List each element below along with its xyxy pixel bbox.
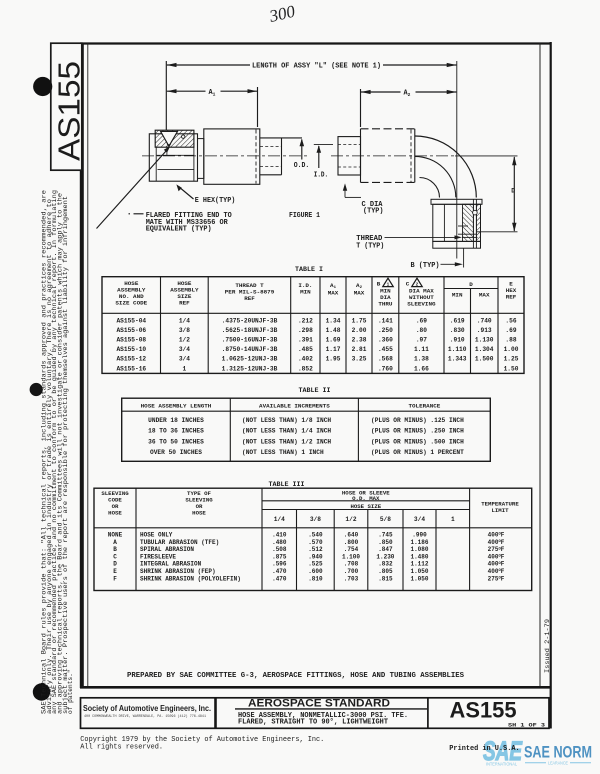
svg-text:.815: .815 — [378, 575, 393, 582]
svg-text:.800: .800 — [344, 539, 359, 546]
svg-text:.805: .805 — [378, 568, 393, 575]
svg-text:(PLUS OR MINUS) 1 PERCENT: (PLUS OR MINUS) 1 PERCENT — [371, 449, 464, 456]
svg-text:400OF: 400OF — [488, 539, 505, 546]
svg-text:A1: A1 — [209, 89, 216, 97]
svg-text:MAX: MAX — [479, 292, 490, 299]
svg-text:1.0625-12UNJ-3B: 1.0625-12UNJ-3B — [222, 356, 278, 363]
svg-text:400OF: 400OF — [488, 553, 505, 560]
svg-text:1.69: 1.69 — [326, 337, 341, 344]
svg-text:AS155: AS155 — [52, 61, 87, 161]
svg-text:2.38: 2.38 — [352, 337, 367, 344]
svg-text:1.130: 1.130 — [475, 337, 494, 344]
svg-text:D: D — [113, 561, 117, 568]
svg-text:of patents.": of patents." — [67, 669, 74, 714]
svg-text:TABLE I: TABLE I — [295, 266, 323, 273]
svg-text:.708: .708 — [344, 561, 359, 568]
svg-text:.7500-16UNJF-3B: .7500-16UNJF-3B — [222, 337, 278, 344]
svg-text:.600: .600 — [308, 568, 323, 575]
svg-text:1.48: 1.48 — [326, 327, 341, 334]
svg-text:THRU: THRU — [378, 301, 393, 308]
svg-text:2.00: 2.00 — [352, 327, 367, 334]
svg-text:(NOT LESS THAN) 1/8 INCH: (NOT LESS THAN) 1/8 INCH — [242, 417, 331, 424]
svg-text:.940: .940 — [308, 553, 323, 560]
svg-text:1.186: 1.186 — [410, 539, 428, 546]
svg-text:.80: .80 — [416, 327, 427, 334]
svg-text:.913: .913 — [477, 327, 492, 334]
svg-text:.212: .212 — [298, 317, 313, 324]
svg-text:.8750-14UNJF-3B: .8750-14UNJF-3B — [222, 346, 278, 353]
svg-text:1.480: 1.480 — [410, 553, 428, 560]
svg-text:1.100: 1.100 — [342, 553, 360, 560]
svg-text:.810: .810 — [308, 575, 323, 582]
svg-text:SH 1 OF 3: SH 1 OF 3 — [508, 722, 546, 729]
svg-text:400OF: 400OF — [488, 561, 505, 568]
svg-text:HOSE ASSEMBLY LENGTH: HOSE ASSEMBLY LENGTH — [141, 403, 212, 410]
svg-text:400OF: 400OF — [488, 532, 505, 539]
svg-text:3/8: 3/8 — [310, 516, 321, 523]
svg-text:.830: .830 — [450, 327, 465, 334]
svg-text:MIN: MIN — [452, 292, 463, 299]
svg-text:400OF: 400OF — [488, 568, 505, 575]
svg-text:LENGTH OF ASSY "L" (SEE NOTE 1: LENGTH OF ASSY "L" (SEE NOTE 1) — [252, 62, 381, 70]
svg-text:3/8: 3/8 — [179, 327, 190, 334]
svg-text:EQUIVALENT (TYP): EQUIVALENT (TYP) — [146, 226, 212, 234]
svg-text:.700: .700 — [344, 568, 359, 575]
svg-text:SLEEVING: SLEEVING — [407, 301, 436, 308]
svg-text:.141: .141 — [378, 317, 393, 324]
svg-text:.508: .508 — [272, 546, 287, 553]
svg-text:REF: REF — [179, 300, 190, 307]
svg-text:1/4: 1/4 — [179, 317, 190, 324]
svg-text:C: C — [113, 553, 117, 560]
svg-text:275OF: 275OF — [488, 575, 505, 582]
svg-text:1.66: 1.66 — [414, 365, 429, 372]
svg-text:AS155-10: AS155-10 — [116, 346, 146, 353]
svg-text:T (TYP): T (TYP) — [356, 242, 384, 250]
svg-text:All rights reserved.: All rights reserved. — [80, 743, 163, 751]
svg-text:FIGURE 1: FIGURE 1 — [289, 212, 320, 220]
svg-text:SHRINK ABRASION (POLYOLEFIN): SHRINK ABRASION (POLYOLEFIN) — [140, 575, 241, 582]
svg-text:.640: .640 — [344, 532, 359, 539]
svg-text:1.17: 1.17 — [326, 346, 341, 353]
svg-text:1.050: 1.050 — [410, 575, 428, 582]
svg-text:2.81: 2.81 — [352, 346, 367, 353]
svg-text:UNDER 18 INCHES: UNDER 18 INCHES — [148, 417, 204, 424]
svg-text:1.110: 1.110 — [448, 346, 467, 353]
svg-text:1.500: 1.500 — [475, 356, 494, 363]
svg-text:B (TYP): B (TYP) — [411, 262, 440, 270]
svg-text:.754: .754 — [344, 546, 359, 553]
svg-text:1.230: 1.230 — [376, 553, 394, 560]
svg-text:1.050: 1.050 — [410, 568, 428, 575]
svg-text:.4375-20UNJF-3B: .4375-20UNJF-3B — [222, 317, 278, 324]
svg-text:300: 300 — [267, 2, 298, 27]
svg-text:MAX: MAX — [354, 290, 365, 297]
svg-text:.410: .410 — [272, 532, 287, 539]
svg-text:AS155-04: AS155-04 — [116, 317, 146, 324]
svg-text:AS155: AS155 — [450, 697, 517, 722]
svg-text:AVAILABLE INCREMENTS: AVAILABLE INCREMENTS — [259, 403, 330, 410]
svg-text:REF: REF — [506, 294, 517, 301]
svg-text:1.11: 1.11 — [414, 346, 429, 353]
svg-text:LEARANCE: LEARANCE — [548, 761, 568, 766]
svg-text:1.304: 1.304 — [475, 346, 494, 353]
svg-text:INTERNATIONAL: INTERNATIONAL — [486, 762, 518, 767]
svg-text:SAE NORM: SAE NORM — [524, 743, 592, 762]
svg-text:TABLE III: TABLE III — [269, 481, 305, 488]
svg-text:1.112: 1.112 — [410, 561, 428, 568]
svg-text:O.D. MAX: O.D. MAX — [352, 495, 380, 502]
svg-text:.990: .990 — [412, 532, 427, 539]
svg-text:(NOT LESS THAN) 1/4 INCH: (NOT LESS THAN) 1/4 INCH — [242, 428, 331, 435]
svg-text:.910: .910 — [450, 337, 465, 344]
svg-text:HOSE: HOSE — [108, 510, 122, 517]
svg-text:.470: .470 — [272, 568, 287, 575]
svg-text:3.25: 3.25 — [352, 356, 367, 363]
svg-text:.850: .850 — [378, 539, 393, 546]
svg-text:C: C — [406, 281, 410, 288]
svg-text:.596: .596 — [272, 561, 287, 568]
svg-text:SHRINK ABRASION (FEP): SHRINK ABRASION (FEP) — [140, 568, 216, 575]
svg-text:.852: .852 — [298, 365, 313, 372]
svg-text:1.95: 1.95 — [326, 356, 341, 363]
svg-text:.703: .703 — [344, 575, 359, 582]
svg-text:.5625-18UNJF-3B: .5625-18UNJF-3B — [222, 327, 278, 334]
svg-text:OVER 50 INCHES: OVER 50 INCHES — [150, 449, 202, 456]
svg-text:TABLE II: TABLE II — [299, 387, 331, 394]
svg-text:1/2: 1/2 — [345, 516, 356, 523]
svg-text:.540: .540 — [308, 532, 323, 539]
svg-text:.570: .570 — [308, 539, 323, 546]
svg-text:HOSE: HOSE — [192, 510, 206, 517]
svg-text:.760: .760 — [378, 365, 393, 372]
svg-text:Printed in U.S.A.: Printed in U.S.A. — [449, 745, 519, 753]
svg-text:.745: .745 — [378, 532, 393, 539]
svg-text:F: F — [113, 575, 117, 582]
svg-text:SIZE CODE: SIZE CODE — [115, 300, 147, 307]
svg-text:B: B — [113, 546, 117, 553]
svg-text:.402: .402 — [298, 356, 313, 363]
svg-text:INTEGRAL ABRASION: INTEGRAL ABRASION — [140, 561, 202, 568]
svg-text:1.343: 1.343 — [448, 356, 467, 363]
svg-text:.568: .568 — [378, 356, 393, 363]
svg-text:1: 1 — [183, 365, 187, 372]
svg-text:MAX: MAX — [328, 290, 339, 297]
svg-text:(NOT LESS THAN) 1 INCH: (NOT LESS THAN) 1 INCH — [242, 449, 324, 456]
svg-text:(PLUS OR MINUS) .125 INCH: (PLUS OR MINUS) .125 INCH — [371, 417, 464, 424]
svg-text:.847: .847 — [378, 546, 393, 553]
svg-text:3/4: 3/4 — [179, 346, 190, 353]
svg-text:.455: .455 — [378, 346, 393, 353]
svg-text:LIMIT: LIMIT — [491, 507, 509, 514]
svg-text:A: A — [113, 539, 117, 546]
svg-text:.740: .740 — [477, 317, 492, 324]
svg-text:.480: .480 — [272, 539, 287, 546]
svg-text:1.38: 1.38 — [414, 356, 429, 363]
svg-text:1.34: 1.34 — [326, 317, 341, 324]
svg-text:AS155-16: AS155-16 — [116, 365, 146, 372]
svg-text:1.00: 1.00 — [504, 346, 519, 353]
svg-text:.525: .525 — [308, 561, 323, 568]
svg-text:3/4: 3/4 — [414, 516, 425, 523]
svg-text:MIN: MIN — [300, 289, 311, 296]
svg-text:1.50: 1.50 — [504, 365, 519, 372]
svg-text:D: D — [469, 281, 473, 288]
svg-text:E HEX(TYP): E HEX(TYP) — [195, 197, 236, 205]
svg-text:.391: .391 — [298, 337, 313, 344]
svg-text:1.25: 1.25 — [504, 356, 519, 363]
svg-text:.69: .69 — [505, 327, 516, 334]
svg-text:E: E — [113, 568, 117, 575]
svg-text:AS155-12: AS155-12 — [116, 356, 146, 363]
svg-text:NONE: NONE — [108, 532, 123, 539]
svg-text:HOSE ONLY: HOSE ONLY — [140, 532, 173, 539]
svg-text:1.080: 1.080 — [410, 546, 428, 553]
svg-text:.832: .832 — [378, 561, 393, 568]
svg-text:FIRESLEEVE: FIRESLEEVE — [140, 553, 176, 560]
svg-text:.69: .69 — [416, 317, 427, 324]
svg-text:Society of Automotive Engineer: Society of Automotive Engineers, Inc. — [83, 703, 211, 713]
svg-text:AS155-06: AS155-06 — [116, 327, 146, 334]
svg-text:B: B — [377, 281, 381, 288]
svg-text:.97: .97 — [416, 337, 427, 344]
svg-text:.485: .485 — [298, 346, 313, 353]
svg-text:subject matter. Prospective us: subject matter. Prospective users of the… — [62, 196, 69, 714]
svg-text:400 COMMONWEALTH DRIVE, WARREN: 400 COMMONWEALTH DRIVE, WARRENDALE, PA. … — [84, 714, 207, 719]
svg-text:(NOT LESS THAN) 1/2 INCH: (NOT LESS THAN) 1/2 INCH — [242, 438, 331, 445]
svg-text:275OF: 275OF — [488, 546, 505, 553]
svg-text:1.75: 1.75 — [352, 317, 367, 324]
svg-text:I.D.: I.D. — [314, 172, 329, 180]
svg-text:AEROSPACE STANDARD: AEROSPACE STANDARD — [248, 698, 390, 710]
svg-text:FLARED, STRAIGHT TO 90°, LIGHT: FLARED, STRAIGHT TO 90°, LIGHTWEIGHT — [238, 718, 388, 727]
svg-text:1.3125-12UNJ-3B: 1.3125-12UNJ-3B — [222, 365, 278, 372]
svg-text:(PLUS OR MINUS) .250 INCH: (PLUS OR MINUS) .250 INCH — [371, 428, 464, 435]
svg-text:.88: .88 — [505, 337, 516, 344]
svg-text:TOLERANCE: TOLERANCE — [408, 403, 440, 410]
svg-text:.250: .250 — [378, 327, 393, 334]
svg-text:1: 1 — [451, 516, 455, 523]
svg-text:PREPARED BY SAE COMMITTEE G-3,: PREPARED BY SAE COMMITTEE G-3, AEROSPACE… — [127, 672, 464, 680]
svg-text:HOSE SIZE: HOSE SIZE — [350, 503, 381, 510]
svg-text:.298: .298 — [298, 327, 313, 334]
svg-text:.619: .619 — [450, 317, 465, 324]
svg-text:.875: .875 — [272, 553, 287, 560]
svg-text:.360: .360 — [378, 337, 393, 344]
svg-text:3/4: 3/4 — [179, 356, 190, 363]
svg-text:18 TO 36 INCHES: 18 TO 36 INCHES — [148, 428, 204, 435]
svg-text:36 TO 50 INCHES: 36 TO 50 INCHES — [148, 438, 204, 445]
svg-text:Issued 2-1-79: Issued 2-1-79 — [544, 619, 551, 673]
svg-text:1/2: 1/2 — [179, 337, 190, 344]
svg-text:.512: .512 — [308, 546, 323, 553]
svg-text:.470: .470 — [272, 575, 287, 582]
svg-text:D: D — [511, 187, 515, 194]
svg-text:TUBULAR ABRASION (TFE): TUBULAR ABRASION (TFE) — [140, 539, 219, 546]
svg-text:A2: A2 — [404, 90, 411, 98]
svg-text:SPIRAL ABRASION: SPIRAL ABRASION — [140, 546, 194, 553]
svg-text:O.D.: O.D. — [294, 162, 310, 170]
svg-text:AS155-08: AS155-08 — [116, 337, 146, 344]
svg-text:1/4: 1/4 — [274, 516, 285, 523]
svg-text:REF: REF — [244, 295, 255, 302]
svg-text:(PLUS OR MINUS) .500 INCH: (PLUS OR MINUS) .500 INCH — [371, 438, 464, 445]
svg-text:5/8: 5/8 — [380, 516, 391, 523]
svg-text:.56: .56 — [505, 317, 516, 324]
svg-text:(TYP): (TYP) — [363, 207, 384, 215]
